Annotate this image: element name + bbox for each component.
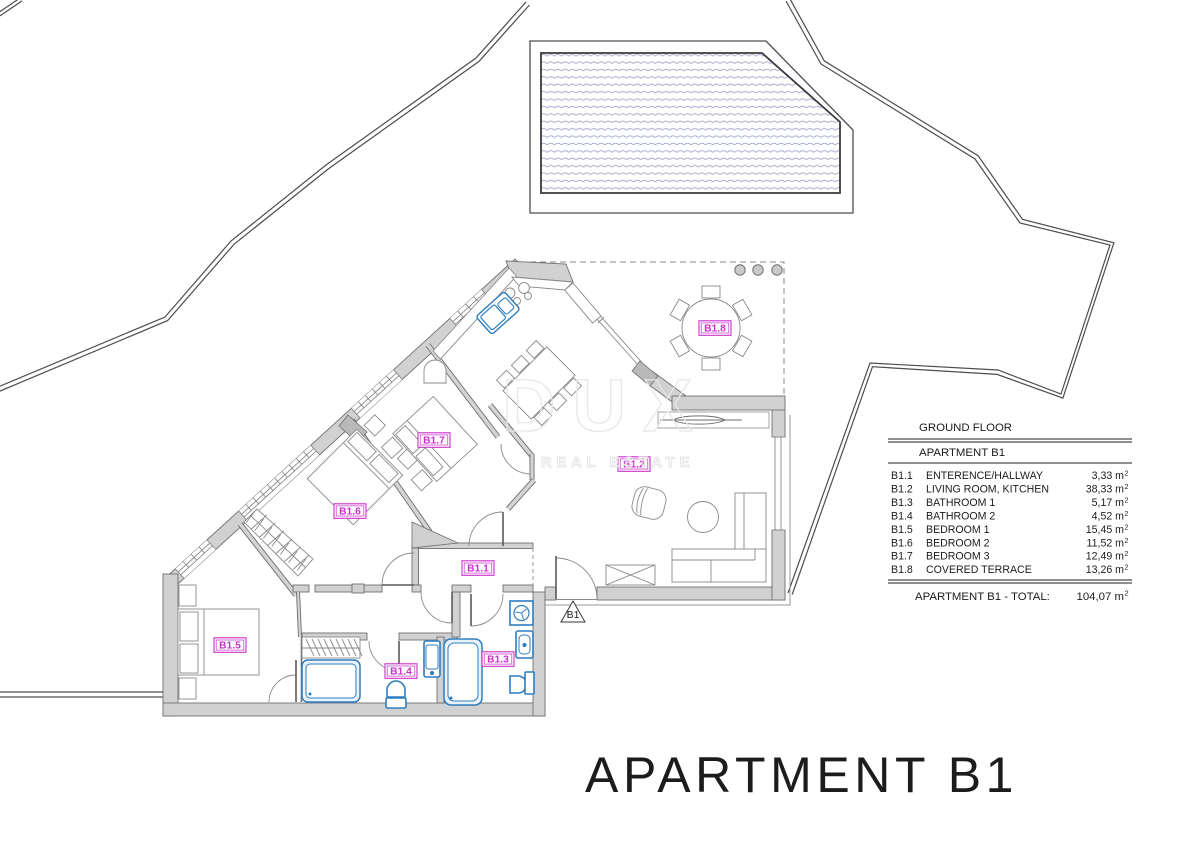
svg-text:12,49 m: 12,49 m bbox=[1086, 551, 1124, 563]
svg-text:2: 2 bbox=[1125, 471, 1129, 478]
svg-text:GROUND FLOOR: GROUND FLOOR bbox=[919, 422, 1012, 434]
svg-text:BATHROOM 2: BATHROOM 2 bbox=[926, 510, 995, 522]
svg-text:BEDROOM 2: BEDROOM 2 bbox=[926, 537, 990, 549]
svg-text:B1.4: B1.4 bbox=[390, 667, 412, 678]
svg-text:B1.3: B1.3 bbox=[487, 655, 509, 666]
svg-text:ENTERENCE/HALLWAY: ENTERENCE/HALLWAY bbox=[926, 470, 1043, 482]
svg-text:4,52 m: 4,52 m bbox=[1092, 510, 1125, 522]
svg-text:B1.3: B1.3 bbox=[891, 497, 913, 509]
svg-text:APARTMENT B1 - TOTAL:: APARTMENT B1 - TOTAL: bbox=[915, 591, 1050, 603]
svg-text:B1.1: B1.1 bbox=[891, 470, 913, 482]
svg-text:2: 2 bbox=[1125, 538, 1129, 545]
svg-text:2: 2 bbox=[1125, 589, 1129, 598]
svg-text:B1: B1 bbox=[567, 609, 580, 621]
svg-text:LIVING ROOM, KITCHEN: LIVING ROOM, KITCHEN bbox=[926, 483, 1049, 495]
svg-text:B1.7: B1.7 bbox=[423, 436, 445, 447]
svg-text:2: 2 bbox=[1125, 497, 1129, 504]
svg-text:13,26 m: 13,26 m bbox=[1086, 564, 1124, 576]
svg-text:2: 2 bbox=[1125, 524, 1129, 531]
svg-text:APARTMENT B1: APARTMENT B1 bbox=[585, 747, 1018, 803]
svg-text:2: 2 bbox=[1125, 484, 1129, 491]
svg-text:B1.8: B1.8 bbox=[891, 564, 913, 576]
svg-text:B1.4: B1.4 bbox=[891, 510, 913, 522]
svg-text:B1.8: B1.8 bbox=[704, 324, 726, 335]
svg-text:3,33 m: 3,33 m bbox=[1092, 470, 1125, 482]
svg-text:104,07 m: 104,07 m bbox=[1077, 591, 1125, 603]
svg-text:BEDROOM 1: BEDROOM 1 bbox=[926, 524, 990, 536]
svg-text:APARTMENT B1: APARTMENT B1 bbox=[919, 447, 1005, 459]
svg-text:B1.1: B1.1 bbox=[467, 564, 489, 575]
svg-text:B1.5: B1.5 bbox=[891, 524, 913, 536]
svg-text:B1.6: B1.6 bbox=[891, 537, 913, 549]
svg-text:BATHROOM 1: BATHROOM 1 bbox=[926, 497, 995, 509]
svg-text:B1.5: B1.5 bbox=[219, 641, 241, 652]
svg-text:11,52 m: 11,52 m bbox=[1087, 537, 1125, 549]
svg-text:B1.7: B1.7 bbox=[891, 551, 913, 563]
svg-text:5,17 m: 5,17 m bbox=[1092, 497, 1125, 509]
svg-text:B1.6: B1.6 bbox=[339, 507, 361, 518]
svg-text:2: 2 bbox=[1125, 511, 1129, 518]
svg-text:2: 2 bbox=[1125, 565, 1129, 572]
svg-text:COVERED TERRACE: COVERED TERRACE bbox=[926, 564, 1032, 576]
svg-text:DUX: DUX bbox=[502, 364, 709, 447]
svg-text:38,33 m: 38,33 m bbox=[1086, 483, 1124, 495]
svg-text:BEDROOM 3: BEDROOM 3 bbox=[926, 551, 990, 563]
svg-text:15,45 m: 15,45 m bbox=[1086, 524, 1124, 536]
svg-text:B1.2: B1.2 bbox=[891, 483, 913, 495]
svg-text:2: 2 bbox=[1125, 551, 1129, 558]
svg-text:REAL ESTATE: REAL ESTATE bbox=[541, 455, 694, 471]
